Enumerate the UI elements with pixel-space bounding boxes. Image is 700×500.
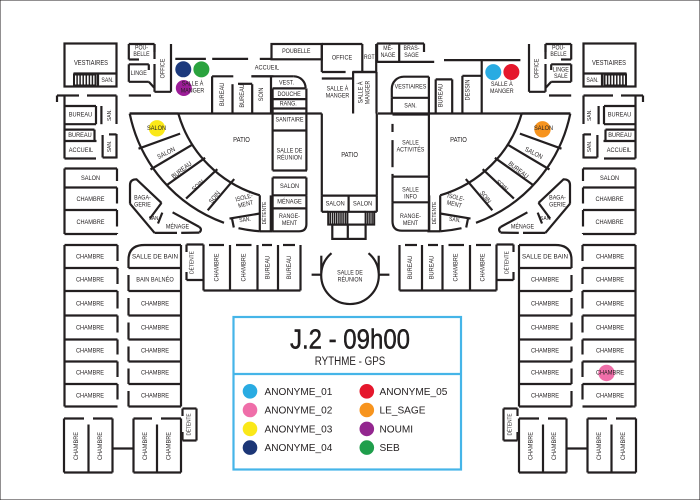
svg-text:SALON: SALON [280,183,299,190]
svg-text:OFFICE: OFFICE [159,59,166,79]
svg-text:RANGE-: RANGE- [400,213,421,220]
svg-text:CHAMBRE: CHAMBRE [596,325,625,332]
svg-text:VEST.: VEST. [279,80,294,87]
svg-text:LE_SAGE: LE_SAGE [380,406,426,417]
svg-text:SALON: SALON [147,125,166,132]
svg-text:BUREAU: BUREAU [219,83,226,107]
svg-text:CHAMBRE: CHAMBRE [97,432,104,461]
svg-text:DÉTENTE: DÉTENTE [504,251,511,274]
svg-text:SAN.: SAN. [107,109,113,121]
svg-text:CHAMBRE: CHAMBRE [141,300,170,307]
svg-text:PATIO: PATIO [341,152,358,159]
svg-text:CHAMBRE: CHAMBRE [142,432,149,461]
svg-text:ANONYME_05: ANONYME_05 [380,387,448,398]
svg-text:BUREAU: BUREAU [239,84,246,108]
svg-text:BELLE: BELLE [550,51,566,58]
svg-text:NOUMI: NOUMI [380,425,414,436]
svg-text:SAN.: SAN. [149,216,160,222]
svg-text:MANGER: MANGER [364,80,371,104]
svg-text:SAN.: SAN. [540,216,551,222]
svg-text:PATIO: PATIO [233,137,250,144]
svg-text:SALLE DE BAIN: SALLE DE BAIN [132,254,178,261]
svg-text:CHAMBRE: CHAMBRE [595,219,624,226]
svg-text:MANGER: MANGER [181,88,205,95]
svg-text:CHAMBRE: CHAMBRE [73,432,80,461]
svg-text:MENT: MENT [282,220,297,227]
svg-text:CHAMBRE: CHAMBRE [596,348,625,355]
svg-text:SALLE À: SALLE À [355,81,364,103]
svg-text:RGT: RGT [364,55,375,61]
svg-text:CHAMBRE: CHAMBRE [531,348,560,355]
svg-text:CHAMBRE: CHAMBRE [620,432,627,461]
svg-text:POUBELLE: POUBELLE [282,48,310,55]
svg-text:BAIN BALNÉO: BAIN BALNÉO [136,275,174,284]
svg-text:RÉUNION: RÉUNION [277,153,302,162]
svg-text:SANITAIRE: SANITAIRE [276,117,304,124]
svg-text:DESSIN: DESSIN [464,79,471,100]
svg-text:SALLE DE BAIN: SALLE DE BAIN [522,254,568,261]
svg-text:CHAMBRE: CHAMBRE [76,300,105,307]
svg-text:CHAMBRE: CHAMBRE [76,392,105,399]
svg-text:RYTHME - GPS: RYTHME - GPS [315,354,386,368]
svg-text:CHAMBRE: CHAMBRE [596,392,625,399]
svg-text:CHAMBRE: CHAMBRE [596,370,625,377]
svg-text:CHAMBRE: CHAMBRE [531,370,560,377]
svg-text:CHAMBRE: CHAMBRE [531,325,560,332]
svg-text:ACCUEIL: ACCUEIL [607,147,632,154]
svg-text:INFO: INFO [404,194,417,201]
svg-text:SEB: SEB [380,443,400,454]
svg-text:CHAMBRE: CHAMBRE [76,277,105,284]
svg-text:GERIE: GERIE [549,202,566,209]
svg-text:SAGE: SAGE [404,52,419,59]
svg-text:SAN.: SAN. [586,77,598,84]
svg-text:OFFICE: OFFICE [332,55,353,62]
svg-text:SALLE À: SALLE À [491,79,513,88]
svg-text:BUREAU: BUREAU [265,256,272,280]
svg-text:DÉTENTE: DÉTENTE [189,251,196,274]
svg-text:OFFICE: OFFICE [534,59,541,79]
svg-text:SALLE À: SALLE À [327,84,349,93]
svg-text:VESTIAIRES: VESTIAIRES [395,84,427,91]
svg-text:BAGA-: BAGA- [549,194,566,201]
svg-text:VESTIAIRES: VESTIAIRES [592,60,626,67]
svg-text:MANGER: MANGER [490,88,514,95]
svg-text:MÉNAGE: MÉNAGE [511,221,534,230]
svg-text:CHAMBRE: CHAMBRE [531,300,560,307]
svg-text:CHAMBRE: CHAMBRE [480,253,487,282]
svg-text:CHAMBRE: CHAMBRE [76,254,105,261]
svg-text:BELLE: BELLE [133,51,149,58]
svg-text:BUREAU: BUREAU [407,256,414,280]
svg-text:CHAMBRE: CHAMBRE [531,392,560,399]
svg-text:CHAMBRE: CHAMBRE [595,196,624,203]
svg-text:CHAMBRE: CHAMBRE [166,432,173,461]
svg-text:CHAMBRE: CHAMBRE [528,432,535,461]
svg-text:SAN.: SAN. [101,77,113,84]
svg-text:SALON: SALON [326,201,345,208]
svg-text:NAGE: NAGE [381,52,396,59]
svg-text:CHAMBRE: CHAMBRE [241,253,248,282]
svg-text:CHAMBRE: CHAMBRE [214,253,221,282]
svg-text:MANGER: MANGER [326,93,350,100]
svg-text:SAN.: SAN. [587,140,593,152]
svg-text:ANONYME_04: ANONYME_04 [265,443,333,454]
svg-text:RANG.: RANG. [280,101,297,108]
svg-text:CHAMBRE: CHAMBRE [76,370,105,377]
svg-text:CHAMBRE: CHAMBRE [141,348,170,355]
svg-text:SALLE DE: SALLE DE [277,147,303,154]
svg-text:SAN.: SAN. [404,103,417,110]
svg-text:CHAMBRE: CHAMBRE [596,300,625,307]
svg-text:SOIN: SOIN [258,87,265,101]
svg-text:BUREAU: BUREAU [68,132,92,139]
svg-text:ANONYME_03: ANONYME_03 [265,425,333,436]
svg-text:PATIO: PATIO [450,137,467,144]
svg-text:CHAMBRE: CHAMBRE [596,432,603,461]
svg-text:CHAMBRE: CHAMBRE [76,348,105,355]
svg-text:RANGE-: RANGE- [279,213,300,220]
svg-text:CHAMBRE: CHAMBRE [76,325,105,332]
svg-text:ACCUEIL: ACCUEIL [69,147,94,154]
svg-text:MÉNAGE: MÉNAGE [166,221,189,230]
svg-text:CHAMBRE: CHAMBRE [141,370,170,377]
svg-text:SAN.: SAN. [107,140,113,152]
svg-text:DÉTENTE: DÉTENTE [261,202,268,225]
svg-text:DÉTENTE: DÉTENTE [507,413,514,435]
svg-text:BUREAU: BUREAU [69,112,93,119]
svg-text:CHAMBRE: CHAMBRE [531,277,560,284]
svg-text:SALE: SALE [554,73,568,80]
svg-text:BUREAU: BUREAU [608,112,632,119]
svg-text:DÉTENTE: DÉTENTE [431,202,438,225]
svg-text:VESTIAIRES: VESTIAIRES [74,60,108,67]
svg-text:CHAMBRE: CHAMBRE [76,219,105,226]
svg-text:ACCUEIL: ACCUEIL [255,64,280,71]
svg-text:LINGE: LINGE [131,70,147,77]
svg-text:CHAMBRE: CHAMBRE [141,325,170,332]
svg-text:ANONYME_01: ANONYME_01 [265,387,333,398]
svg-text:SALLE: SALLE [402,139,419,146]
svg-text:ACTIVITÉS: ACTIVITÉS [397,144,425,153]
svg-text:CHAMBRE: CHAMBRE [76,196,105,203]
svg-text:CHAMBRE: CHAMBRE [596,277,625,284]
svg-text:SAN.: SAN. [587,109,593,121]
svg-text:BUREAU: BUREAU [286,256,293,280]
svg-text:CHAMBRE: CHAMBRE [453,253,460,282]
svg-text:SALON: SALON [81,175,100,182]
svg-text:CHAMBRE: CHAMBRE [596,254,625,261]
svg-text:BAGA-: BAGA- [134,194,151,201]
svg-text:BUREAU: BUREAU [608,132,632,139]
svg-text:J.2 - 09h00: J.2 - 09h00 [290,324,410,355]
svg-text:SALLE À: SALLE À [182,79,204,88]
svg-text:ANONYME_02: ANONYME_02 [265,406,333,417]
svg-text:BUREAU: BUREAU [429,256,436,280]
svg-text:SALON: SALON [534,125,553,132]
svg-text:RÉUNION: RÉUNION [338,275,363,284]
svg-text:MÉNAGE: MÉNAGE [277,197,302,206]
svg-text:GERIE: GERIE [134,202,151,209]
svg-text:MENT: MENT [403,220,418,227]
svg-text:DOUCHE: DOUCHE [277,91,300,98]
svg-text:SALON: SALON [353,201,372,208]
svg-text:SALLE DE: SALLE DE [337,269,363,276]
svg-text:SALON: SALON [600,175,619,182]
svg-text:CHAMBRE: CHAMBRE [551,432,558,461]
svg-text:CHAMBRE: CHAMBRE [141,392,170,399]
svg-text:DÉTENTE: DÉTENTE [186,413,193,435]
svg-text:BUREAU: BUREAU [438,84,445,108]
